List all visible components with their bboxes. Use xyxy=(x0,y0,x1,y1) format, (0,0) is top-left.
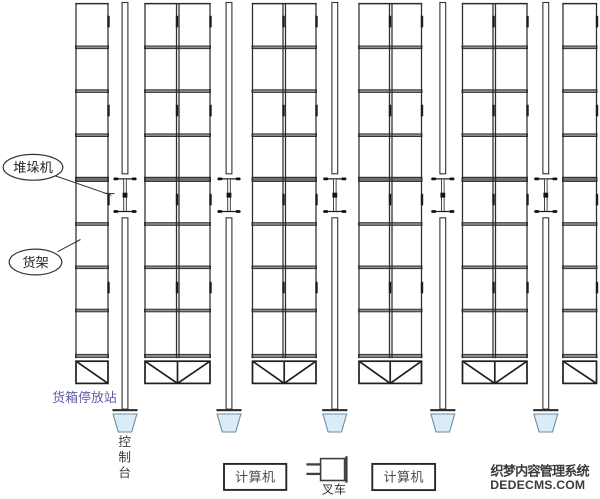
svg-text:叉车: 叉车 xyxy=(322,481,346,496)
svg-text:织梦内容管理系统: 织梦内容管理系统 xyxy=(491,463,590,479)
svg-text:计算机: 计算机 xyxy=(383,470,424,485)
svg-text:货架: 货架 xyxy=(22,254,48,270)
svg-text:制: 制 xyxy=(118,450,131,464)
svg-text:堆垛机: 堆垛机 xyxy=(13,160,53,175)
svg-text:DEDECMS.COM: DEDECMS.COM xyxy=(490,478,585,492)
svg-text:货箱停放站: 货箱停放站 xyxy=(52,390,117,405)
svg-text:台: 台 xyxy=(118,466,131,480)
svg-text:控: 控 xyxy=(118,435,131,449)
svg-text:计算机: 计算机 xyxy=(235,470,276,485)
